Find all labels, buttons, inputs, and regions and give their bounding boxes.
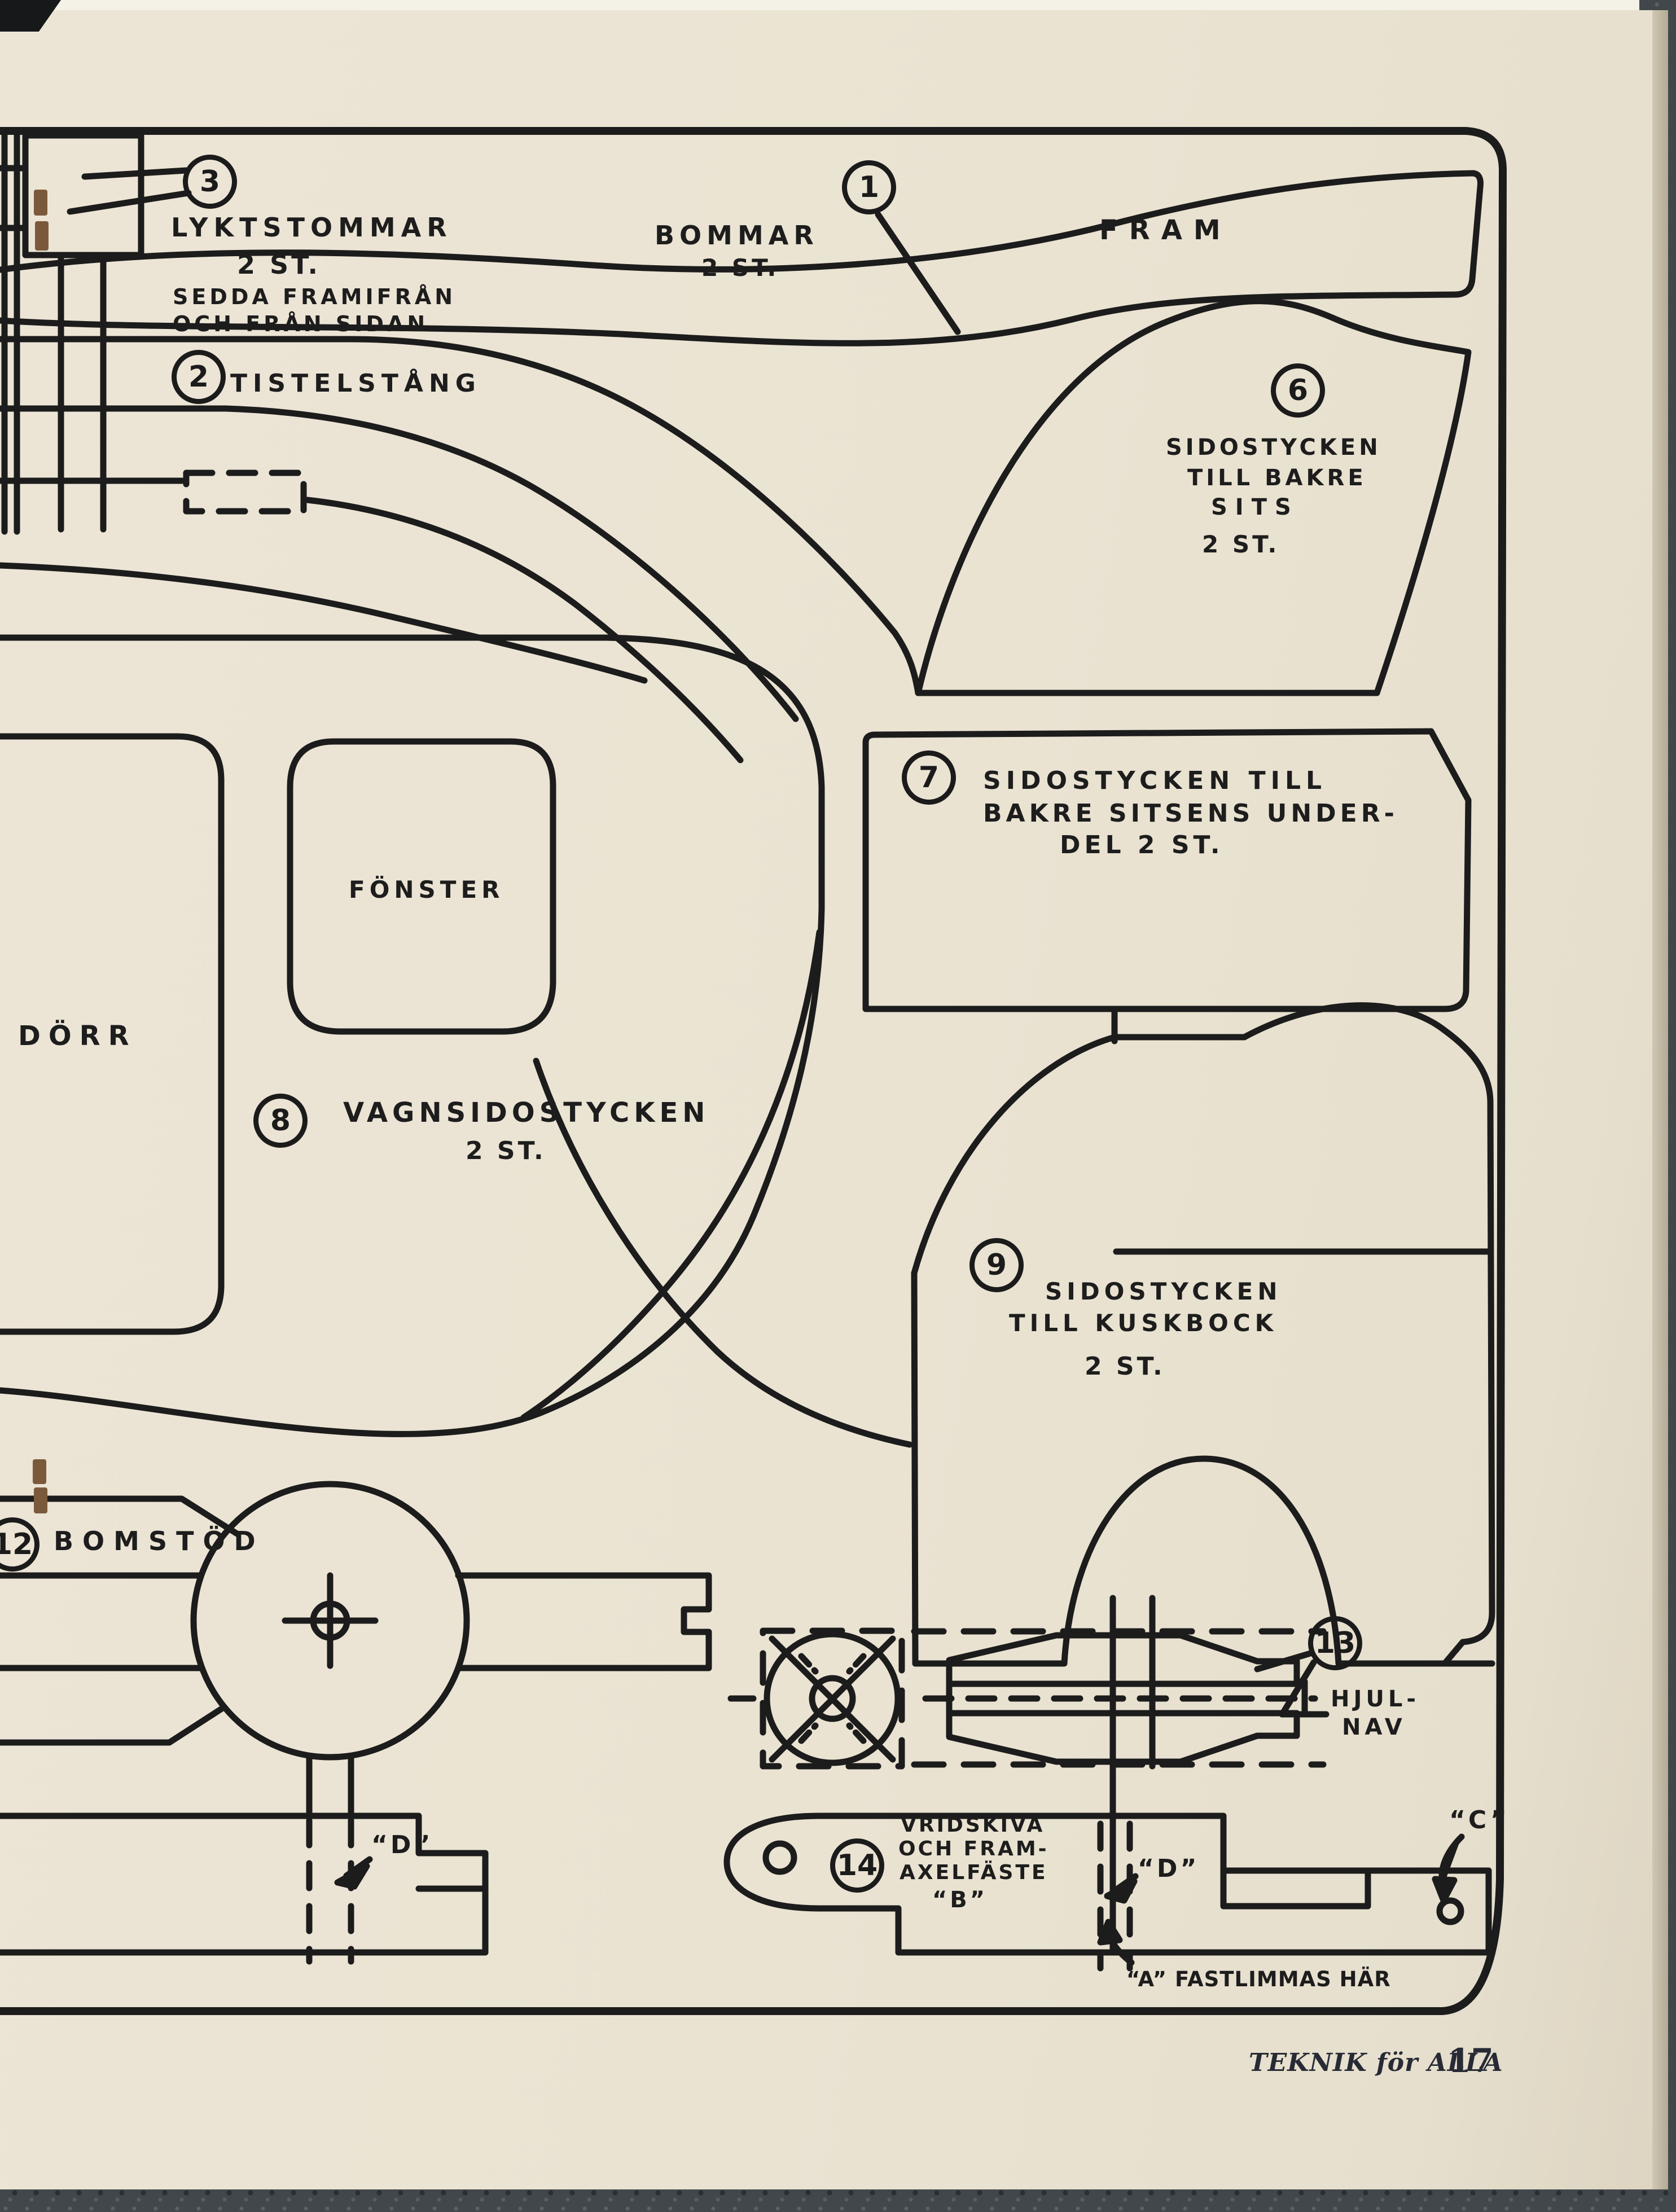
magazine-page-scan: 3 1 2 6 7 8 9 12 13 14 LYKTSTOMMAR 2 ST.… — [0, 0, 1676, 2212]
binding-staple-top-a — [34, 190, 47, 216]
lantern-piece-outline — [0, 135, 188, 532]
label-sits-1: SIDOSTYCKEN — [1166, 434, 1381, 460]
part-number-7: 7 — [902, 750, 956, 805]
label-underdel-2: BAKRE SITSENS UNDER- — [983, 799, 1398, 828]
label-ref-c: “C” — [1449, 1806, 1510, 1834]
drawing-frame-border — [0, 131, 1503, 2011]
label-ref-b: “B” — [932, 1887, 988, 1913]
crossing-sweep-curves — [524, 932, 910, 1445]
label-vagnsido-count: 2 ST. — [466, 1136, 546, 1165]
part-number-14: 14 — [830, 1838, 884, 1893]
label-sits-3: SITS — [1211, 494, 1299, 520]
part-number-9: 9 — [969, 1238, 1024, 1292]
label-underdel-3: DEL 2 ST. — [1060, 831, 1224, 859]
label-hjulnav-2: NAV — [1342, 1714, 1406, 1740]
label-vridskiva-2: OCH FRAM- — [898, 1837, 1049, 1860]
label-vagnsidostycken: VAGNSIDOSTYCKEN — [343, 1097, 709, 1129]
rear-seat-side-outline — [918, 301, 1468, 693]
part-number-6: 6 — [1271, 363, 1325, 418]
label-bomstod: BOMSTÖD — [54, 1526, 265, 1556]
binding-staple-top-b — [35, 221, 49, 251]
label-dorr: DÖRR — [18, 1020, 137, 1052]
label-fonster: FÖNSTER — [349, 876, 504, 903]
label-och-fran-sidan: OCH FRÅN SIDAN — [173, 311, 428, 336]
label-vridskiva-1: VRIDSKIVA — [901, 1814, 1045, 1837]
label-sits-count: 2 ST. — [1202, 530, 1279, 558]
label-ref-d-right: “D” — [1138, 1854, 1199, 1883]
label-sits-2: TILL BAKRE — [1187, 465, 1367, 491]
label-bommar-count: 2 ST. — [701, 254, 779, 282]
drawbar-piece-outline — [0, 339, 918, 760]
label-bommar: BOMMAR — [655, 220, 819, 251]
paper-page: 3 1 2 6 7 8 9 12 13 14 LYKTSTOMMAR 2 ST.… — [0, 10, 1652, 2189]
label-sedda-framifran: SEDDA FRAMIFRÅN — [173, 284, 456, 309]
label-hjulnav-1: HJUL- — [1331, 1686, 1420, 1712]
part-number-3: 3 — [183, 155, 237, 209]
label-underdel-1: SIDOSTYCKEN TILL — [983, 766, 1327, 795]
binding-staple-bottom-a — [33, 1459, 46, 1484]
label-lyktstommar-count: 2 ST. — [237, 249, 321, 280]
part-number-13: 13 — [1308, 1616, 1362, 1670]
wheel-hub-views — [731, 1598, 1326, 1968]
part-number-2: 2 — [172, 350, 226, 404]
part-number-8: 8 — [253, 1094, 308, 1148]
label-fram: FRAM — [1099, 214, 1232, 246]
label-kuskbock-2: TILL KUSKBOCK — [1009, 1309, 1278, 1337]
label-ref-d-left: “D” — [371, 1831, 433, 1859]
label-fastlimmas: “A” FASTLIMMAS HÄR — [1126, 1967, 1391, 1991]
label-kuskbock-count: 2 ST. — [1085, 1352, 1165, 1381]
page-number: 17 — [1448, 2042, 1494, 2080]
binding-staple-bottom-b — [34, 1487, 47, 1513]
label-lyktstommar: LYKTSTOMMAR — [171, 212, 453, 243]
part-number-1: 1 — [842, 160, 896, 214]
label-tistelstang: TISTELSTÅNG — [230, 369, 481, 398]
label-kuskbock-1: SIDOSTYCKEN — [1045, 1278, 1282, 1305]
label-vridskiva-3: AXELFÄSTE — [900, 1861, 1048, 1884]
